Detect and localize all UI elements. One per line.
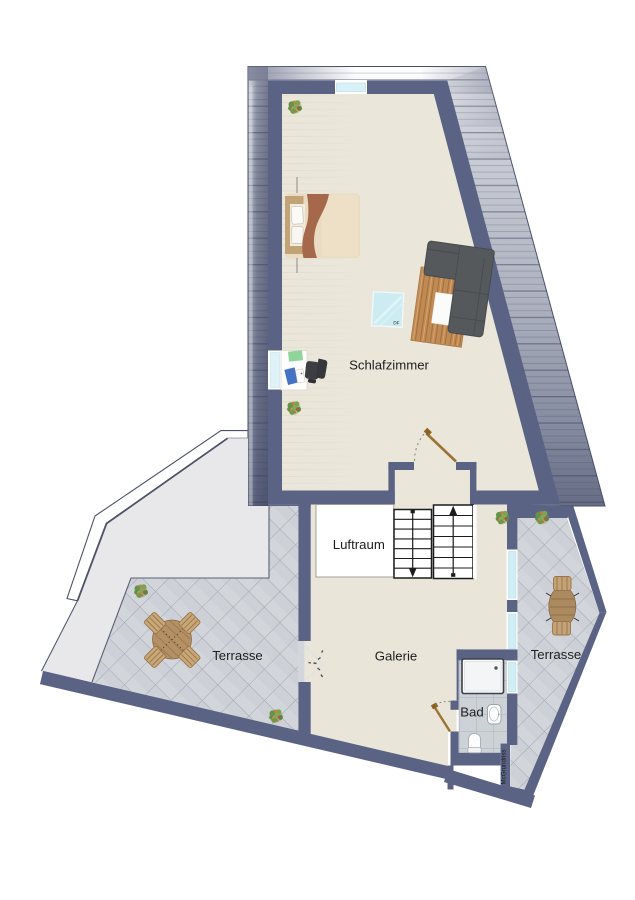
svg-text:McGrundriss: McGrundriss	[501, 749, 508, 784]
svg-text:Galerie: Galerie	[375, 649, 418, 664]
svg-text:Schlafzimmer: Schlafzimmer	[349, 358, 429, 373]
svg-text:DF: DF	[393, 320, 400, 325]
svg-text:Bad: Bad	[460, 705, 483, 720]
svg-text:Terrasse: Terrasse	[531, 647, 582, 662]
svg-text:Luftraum: Luftraum	[333, 537, 385, 552]
svg-text:Terrasse: Terrasse	[212, 648, 263, 663]
